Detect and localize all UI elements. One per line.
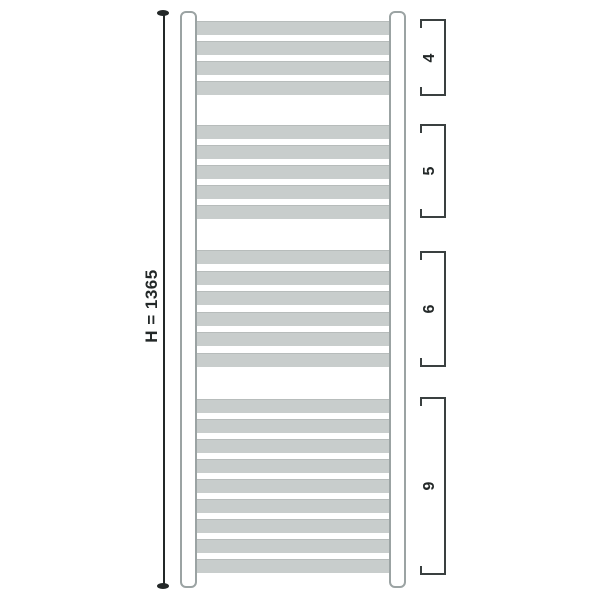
group-count-label: 6 [421, 289, 439, 329]
rung [194, 41, 393, 55]
dimension-endpoint-bottom [157, 583, 169, 589]
rung [194, 185, 393, 199]
group-count-label: 5 [421, 151, 439, 191]
rung [194, 399, 393, 413]
rung [194, 21, 393, 35]
rung [194, 539, 393, 553]
rung [194, 519, 393, 533]
rung [194, 291, 393, 305]
rung [194, 559, 393, 573]
rung [194, 205, 393, 219]
group-count-label: 9 [421, 466, 439, 506]
rung [194, 61, 393, 75]
rung [194, 353, 393, 367]
rung [194, 125, 393, 139]
radiator-right-rail [389, 11, 406, 588]
rung [194, 459, 393, 473]
rung [194, 332, 393, 346]
group-count-label: 4 [421, 38, 439, 78]
rung [194, 499, 393, 513]
height-dimension-line [163, 13, 165, 587]
rung [194, 145, 393, 159]
height-dimension-label: H = 1365 [142, 236, 162, 376]
radiator-left-rail [180, 11, 197, 588]
rung [194, 81, 393, 95]
rung [194, 250, 393, 264]
rung [194, 419, 393, 433]
dimension-endpoint-top [157, 10, 169, 16]
rung [194, 271, 393, 285]
radiator-dimension-diagram: H = 1365 4569 [0, 0, 600, 600]
rung [194, 439, 393, 453]
rung [194, 312, 393, 326]
rung [194, 479, 393, 493]
rung [194, 165, 393, 179]
